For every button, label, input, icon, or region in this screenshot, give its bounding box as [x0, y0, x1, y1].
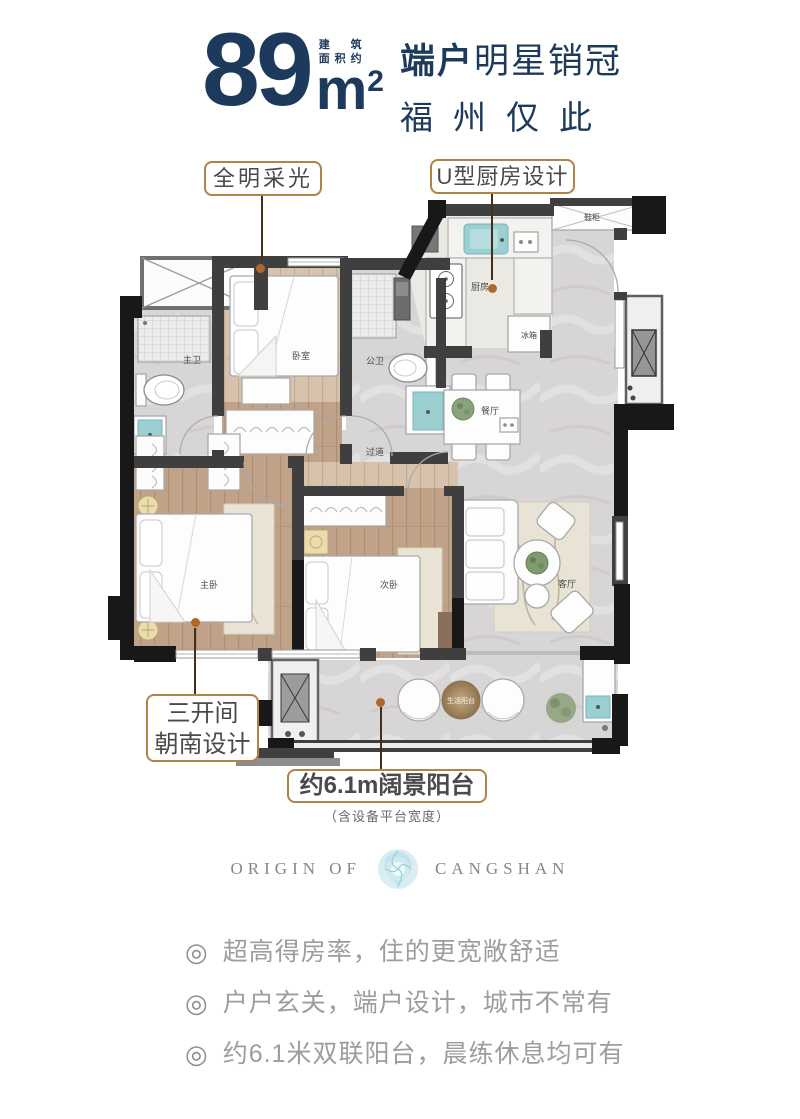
- room-label-hallway: 过道: [366, 446, 384, 457]
- callout-daylight: 全明采光: [204, 161, 322, 196]
- area-headline: 89 建筑 面积约 m2: [202, 30, 384, 111]
- slogan-line1-rest: 明星销冠: [474, 42, 622, 81]
- slogan: 端户明星销冠 福州仅此: [400, 33, 622, 139]
- balcony-chair: [482, 679, 524, 721]
- leader-dot-daylight: [256, 264, 265, 273]
- leader-line-ukitchen: [491, 192, 493, 280]
- floor-plan: 主卫 卧室 公卫 厨房 冰箱 鞋柜 餐厅 过道 主卧 次卧 客厅 生活阳台: [100, 195, 678, 775]
- area-label-line1: 建筑: [319, 39, 384, 53]
- logo-text-left: ORIGIN OF: [231, 859, 361, 879]
- callout-south-facing: 三开间 朝南设计: [146, 694, 259, 762]
- leader-line-daylight: [261, 194, 263, 260]
- leader-dot-ukitchen: [488, 284, 497, 293]
- poster-page: 89 建筑 面积约 m2 端户明星销冠 福州仅此 全明采光 U型厨房设计 三开间…: [0, 0, 800, 1119]
- feature-text: 户户玄关，端户设计，城市不常有: [223, 987, 613, 1020]
- callout-south-line2: 朝南设计: [148, 729, 257, 760]
- bullseye-bullet-icon: ◎: [185, 1038, 208, 1071]
- room-label-dining: 餐厅: [481, 405, 499, 416]
- callout-balcony-note: （含设备平台宽度）: [287, 806, 487, 825]
- slogan-line1-bold: 端户: [400, 42, 474, 81]
- room-label-living-room: 客厅: [558, 578, 576, 589]
- room-label-bedroom: 卧室: [292, 350, 310, 361]
- room-label-second-bedroom: 次卧: [380, 579, 398, 590]
- rose-flower-icon: [375, 845, 421, 893]
- feature-item: ◎ 超高得房率，住的更宽敞舒适: [185, 936, 624, 969]
- feature-text: 超高得房率，住的更宽敞舒适: [223, 936, 561, 969]
- area-unit: m2: [316, 69, 384, 111]
- slogan-line2: 福州仅此: [400, 91, 622, 139]
- callout-south-line1: 三开间: [148, 698, 257, 729]
- room-label-master-bath: 主卫: [183, 354, 201, 365]
- callout-balcony: 约6.1m阔景阳台: [287, 769, 487, 803]
- balcony-chair: [398, 679, 440, 721]
- feature-list: ◎ 超高得房率，住的更宽敞舒适 ◎ 户户玄关，端户设计，城市不常有 ◎ 约6.1…: [185, 936, 624, 1089]
- feature-text: 约6.1米双联阳台，晨练休息均可有: [223, 1038, 625, 1071]
- bullseye-bullet-icon: ◎: [185, 987, 208, 1020]
- leader-line-south: [194, 628, 196, 694]
- brand-logo: ORIGIN OF CANGSHAN: [0, 845, 800, 893]
- room-label-life-balcony: 生活阳台: [447, 696, 475, 705]
- room-label-fridge: 冰箱: [521, 330, 537, 340]
- area-unit-block: 建筑 面积约 m2: [316, 39, 384, 111]
- area-value: 89: [202, 30, 310, 111]
- equipment-platform-right: [615, 296, 662, 404]
- leader-dot-south: [191, 618, 200, 627]
- balcony-plant: [546, 693, 576, 723]
- feature-item: ◎ 约6.1米双联阳台，晨练休息均可有: [185, 1038, 624, 1071]
- room-label-shoe-cabinet: 鞋柜: [584, 212, 600, 222]
- room-label-kitchen: 厨房: [471, 281, 489, 292]
- area-unit-base: m: [316, 57, 368, 122]
- leader-dot-balcony: [376, 698, 385, 707]
- leader-line-balcony: [380, 707, 382, 769]
- slogan-line1: 端户明星销冠: [400, 33, 622, 84]
- logo-text-right: CANGSHAN: [435, 859, 569, 879]
- bullseye-bullet-icon: ◎: [185, 936, 208, 969]
- callout-ukitchen: U型厨房设计: [430, 159, 575, 194]
- area-unit-sup: 2: [367, 65, 384, 98]
- feature-item: ◎ 户户玄关，端户设计，城市不常有: [185, 987, 624, 1020]
- room-label-public-bath: 公卫: [366, 356, 384, 366]
- room-label-master-bedroom: 主卧: [200, 579, 218, 590]
- nightstand: [304, 530, 328, 554]
